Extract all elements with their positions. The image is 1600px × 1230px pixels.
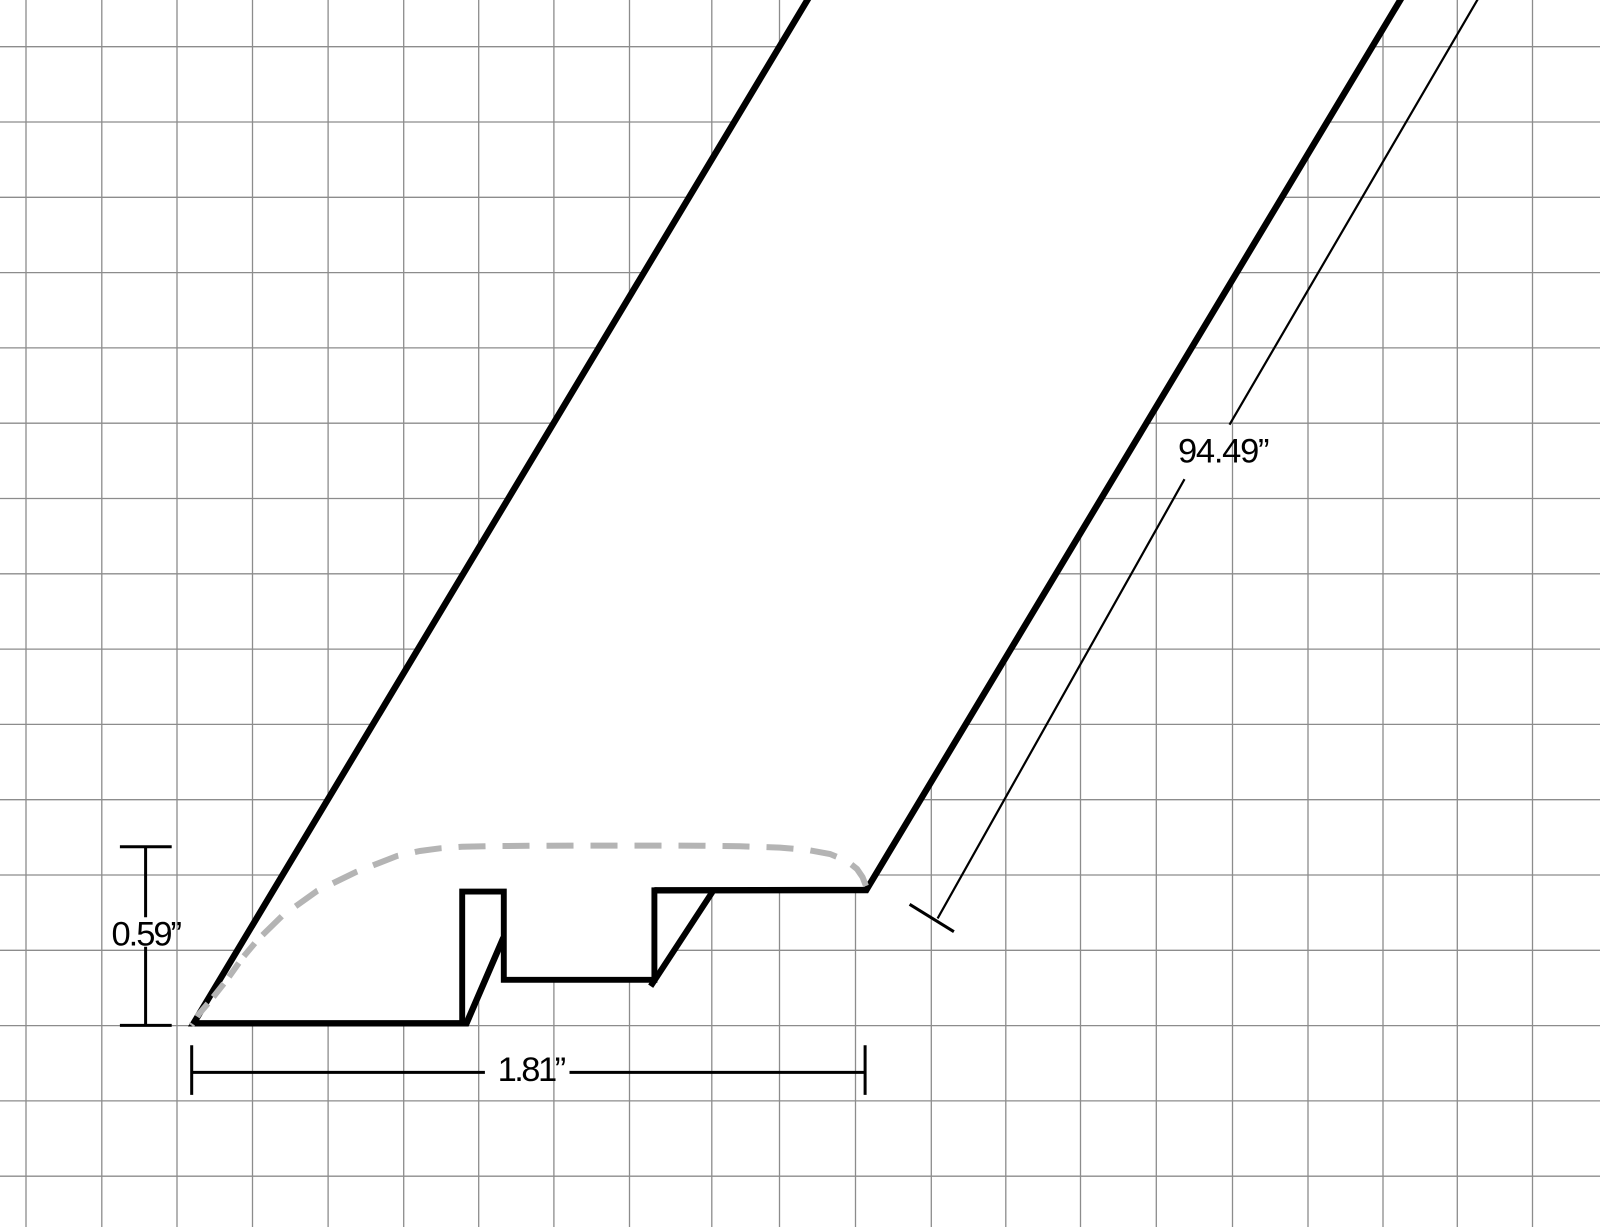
svg-text:0.59”: 0.59” (112, 916, 183, 954)
svg-text:94.49”: 94.49” (1178, 432, 1270, 470)
svg-text:1.81”: 1.81” (498, 1051, 566, 1089)
